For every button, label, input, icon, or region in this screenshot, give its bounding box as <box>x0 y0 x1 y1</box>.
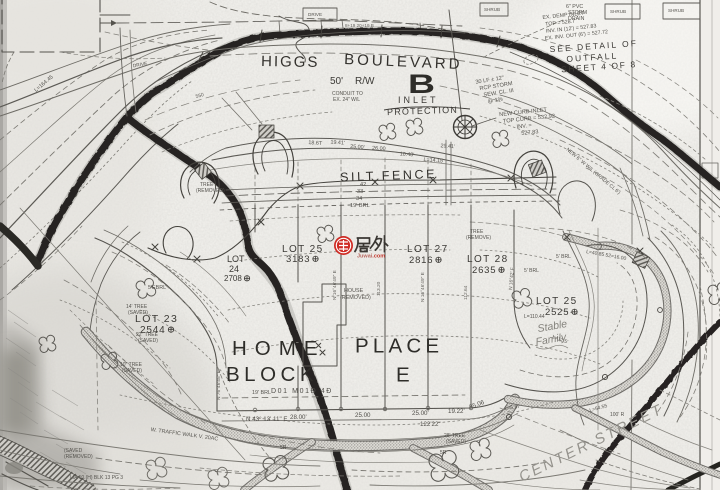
svg-text:25.00': 25.00' <box>412 410 429 417</box>
svg-text:5R: 5R <box>440 450 447 456</box>
svg-text:D01 M01Ð 4Ð: D01 M01Ð 4Ð <box>271 388 333 395</box>
svg-text:5' BRL: 5' BRL <box>524 268 539 274</box>
svg-text:2816: 2816 <box>409 255 433 266</box>
svg-text:LOT: LOT <box>227 254 245 264</box>
svg-text:(REMOVED): (REMOVED) <box>64 454 93 460</box>
svg-text:34: 34 <box>356 196 362 202</box>
svg-text:LIA 10.(H) BLK 13 PG 3: LIA 10.(H) BLK 13 PG 3 <box>70 475 123 481</box>
svg-text:5' BRL: 5' BRL <box>556 254 571 260</box>
svg-text:18.6T: 18.6T <box>308 140 323 147</box>
svg-text:E: E <box>396 364 410 387</box>
svg-text:N 16°46'49" E: N 16°46'49" E <box>420 272 426 302</box>
svg-text:5R: 5R <box>280 445 287 451</box>
svg-text:L=110.44: L=110.44 <box>524 314 545 320</box>
svg-text:SHRUB: SHRUB <box>668 8 684 13</box>
svg-text:DRAIN: DRAIN <box>568 16 585 22</box>
svg-text:122'22": 122'22" <box>420 421 441 428</box>
svg-text:LOT 27: LOT 27 <box>407 244 449 255</box>
svg-text:HOUSE: HOUSE <box>344 288 364 294</box>
svg-text:28.00': 28.00' <box>290 414 307 421</box>
svg-text:N 43° 13' 11" E: N 43° 13' 11" E <box>246 416 288 423</box>
svg-text:2525: 2525 <box>545 307 569 318</box>
svg-text:5'EBRL: 5'EBRL <box>148 285 166 291</box>
svg-text:19.41': 19.41' <box>330 140 345 147</box>
svg-text:26.00: 26.00 <box>372 145 386 152</box>
svg-text:R/W: R/W <box>355 76 375 87</box>
svg-text:(SAVED): (SAVED) <box>128 310 148 316</box>
svg-text:LOT 25: LOT 25 <box>536 296 578 307</box>
svg-text:DRIVE: DRIVE <box>308 12 322 17</box>
svg-text:3183: 3183 <box>286 254 310 265</box>
svg-text:N 76°46'45" E: N 76°46'45" E <box>216 370 222 400</box>
svg-text:HOME: HOME <box>232 337 326 360</box>
svg-text:(SAVED): (SAVED) <box>122 368 142 374</box>
svg-text:INLET: INLET <box>398 95 439 105</box>
svg-text:113.20: 113.20 <box>376 281 382 296</box>
svg-text:42: 42 <box>360 182 366 188</box>
svg-text:Juwai.com: Juwai.com <box>357 254 385 260</box>
svg-text:25.00: 25.00 <box>355 412 371 419</box>
svg-text:LOT 28: LOT 28 <box>467 254 509 265</box>
svg-text:EX. 24" W/L: EX. 24" W/L <box>333 97 360 103</box>
svg-text:(REMOVED): (REMOVED) <box>340 295 371 301</box>
svg-text:HIGGS: HIGGS <box>261 53 320 71</box>
svg-text:N 16°46'49" E: N 16°46'49" E <box>332 270 338 300</box>
svg-text:BLOCK: BLOCK <box>226 363 318 386</box>
svg-text:(SAVED): (SAVED) <box>138 338 158 344</box>
svg-text:19.22': 19.22' <box>448 408 465 415</box>
svg-text:100' R: 100' R <box>610 412 625 418</box>
svg-text:24: 24 <box>229 264 239 274</box>
svg-text:25.00': 25.00' <box>350 144 365 151</box>
svg-text:PLACE: PLACE <box>355 335 443 358</box>
svg-text:2708: 2708 <box>224 274 242 283</box>
svg-text:(REMOVE): (REMOVE) <box>466 235 491 241</box>
svg-text:SHRUB: SHRUB <box>610 9 626 14</box>
svg-text:10.40': 10.40' <box>400 151 415 158</box>
svg-text:29.41': 29.41' <box>440 143 455 150</box>
svg-text:19' BRL: 19' BRL <box>350 203 370 209</box>
svg-text:112.64: 112.64 <box>463 285 469 300</box>
svg-text:33: 33 <box>357 189 363 195</box>
svg-text:(REMOVED): (REMOVED) <box>196 188 225 194</box>
svg-text:2635: 2635 <box>472 265 496 276</box>
svg-text:(SAVED): (SAVED) <box>446 439 466 445</box>
svg-text:50': 50' <box>330 76 343 87</box>
svg-text:8+19 20+19 B: 8+19 20+19 B <box>345 23 374 28</box>
svg-text:19' BRL: 19' BRL <box>252 390 271 396</box>
svg-text:SHRUB: SHRUB <box>484 7 500 12</box>
